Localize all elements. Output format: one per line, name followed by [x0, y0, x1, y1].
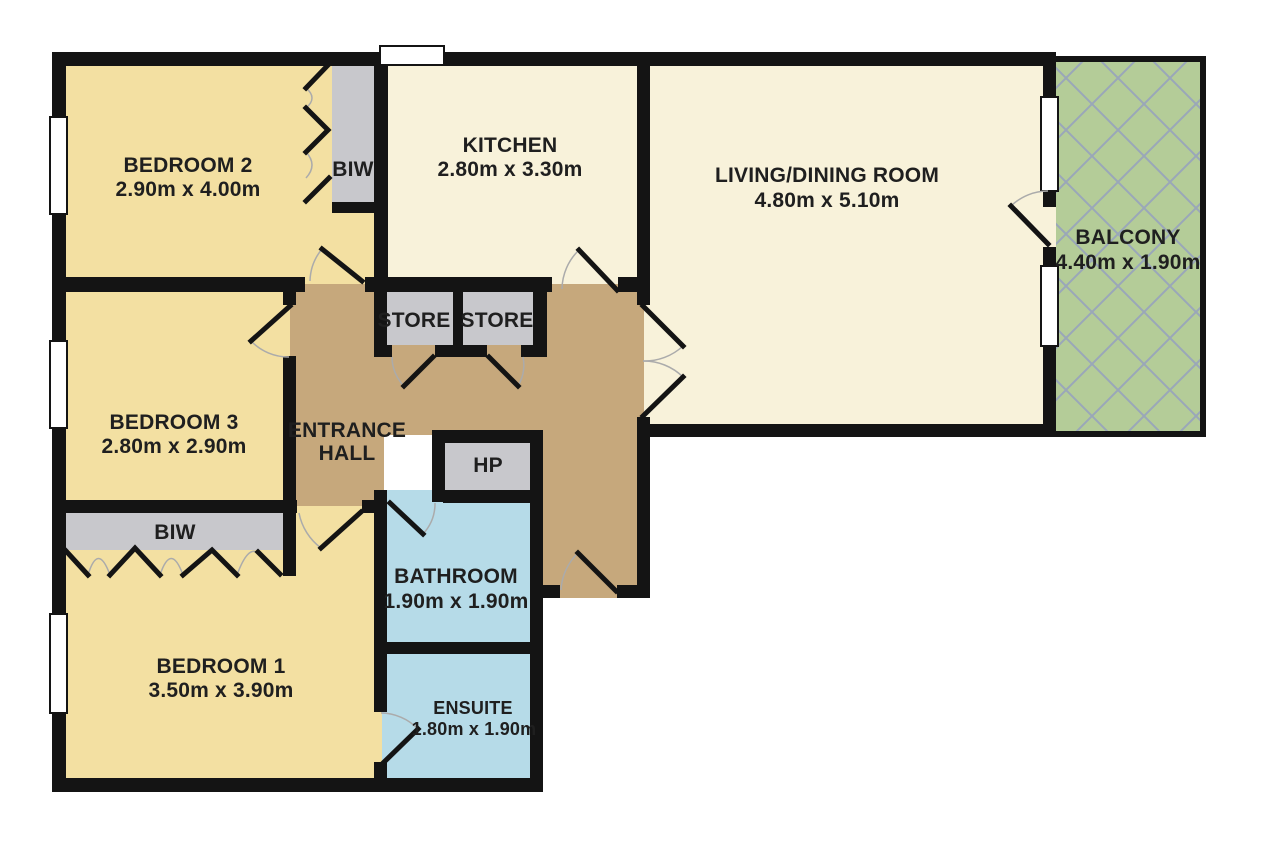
label-bedroom1-name: BEDROOM 1	[157, 655, 286, 678]
label-living-dims: 4.80m x 5.10m	[754, 189, 899, 212]
wall-segment	[637, 417, 650, 598]
label-hall-line1: ENTRANCE	[288, 419, 406, 442]
hall-center	[384, 345, 644, 435]
window-bedroom1	[50, 614, 67, 713]
label-bedroom2-name: BEDROOM 2	[124, 154, 253, 177]
wall-segment	[432, 430, 445, 502]
wall-segment	[432, 430, 543, 443]
hall-left-column	[290, 284, 384, 506]
balcony-wall	[1056, 56, 1206, 62]
room-living-dining	[644, 60, 1056, 430]
wall-segment	[1043, 345, 1056, 437]
wall-segment	[365, 277, 552, 292]
window-living-2	[1041, 266, 1058, 346]
wall-segment	[374, 642, 543, 654]
window-bedroom3	[50, 341, 67, 428]
label-bedroom2-dims: 2.90m x 4.00m	[115, 178, 260, 201]
wall-segment	[637, 52, 650, 305]
label-hp: HP	[473, 454, 503, 477]
window-bedroom2	[50, 117, 67, 214]
wall-segment	[443, 490, 543, 503]
label-kitchen-name: KITCHEN	[463, 134, 558, 157]
label-hall-line2: HALL	[319, 442, 376, 465]
label-biw-bedroom1: BIW	[154, 521, 195, 544]
wall-segment	[283, 356, 296, 576]
label-store-2: STORE	[461, 309, 534, 332]
wall-segment	[435, 345, 487, 357]
label-balcony-name: BALCONY	[1075, 226, 1180, 249]
wall-segment	[52, 500, 297, 513]
label-living-name: LIVING/DINING ROOM	[715, 164, 939, 187]
hall-lower-right	[536, 430, 644, 598]
label-store-1: STORE	[378, 309, 451, 332]
label-bedroom1-dims: 3.50m x 3.90m	[148, 679, 293, 702]
window-living-1	[1041, 97, 1058, 191]
label-bedroom3-dims: 2.80m x 2.90m	[101, 435, 246, 458]
balcony-wall	[1200, 56, 1206, 437]
label-bedroom3-name: BEDROOM 3	[110, 411, 239, 434]
balcony-wall	[1056, 431, 1206, 437]
wall-segment	[283, 277, 296, 305]
wall-segment	[1043, 247, 1056, 268]
wall-segment	[52, 778, 543, 792]
label-bathroom-name: BATHROOM	[394, 565, 518, 588]
window-kitchen	[380, 46, 444, 65]
label-ensuite-dims: 1.80m x 1.90m	[412, 719, 537, 739]
floorplan-svg: BEDROOM 2 2.90m x 4.00m KITCHEN 2.80m x …	[0, 0, 1280, 863]
wall-segment	[1043, 52, 1056, 98]
hall-upper-right	[540, 284, 644, 357]
wall-segment	[533, 277, 547, 357]
wall-segment	[1043, 190, 1056, 207]
label-balcony-dims: 4.40m x 1.90m	[1055, 251, 1200, 274]
label-ensuite-name: ENSUITE	[433, 698, 512, 718]
wall-segment	[52, 277, 305, 292]
label-biw-bedroom2: BIW	[332, 158, 373, 181]
room-bedroom3	[60, 286, 290, 506]
closet-biw-bedroom2	[332, 64, 376, 204]
label-kitchen-dims: 2.80m x 3.30m	[437, 158, 582, 181]
wall-segment	[52, 52, 1056, 66]
wall-segment	[374, 52, 388, 292]
floorplan: BEDROOM 2 2.90m x 4.00m KITCHEN 2.80m x …	[0, 0, 1280, 863]
wall-segment	[650, 424, 1056, 437]
label-bathroom-dims: 1.90m x 1.90m	[383, 590, 528, 613]
